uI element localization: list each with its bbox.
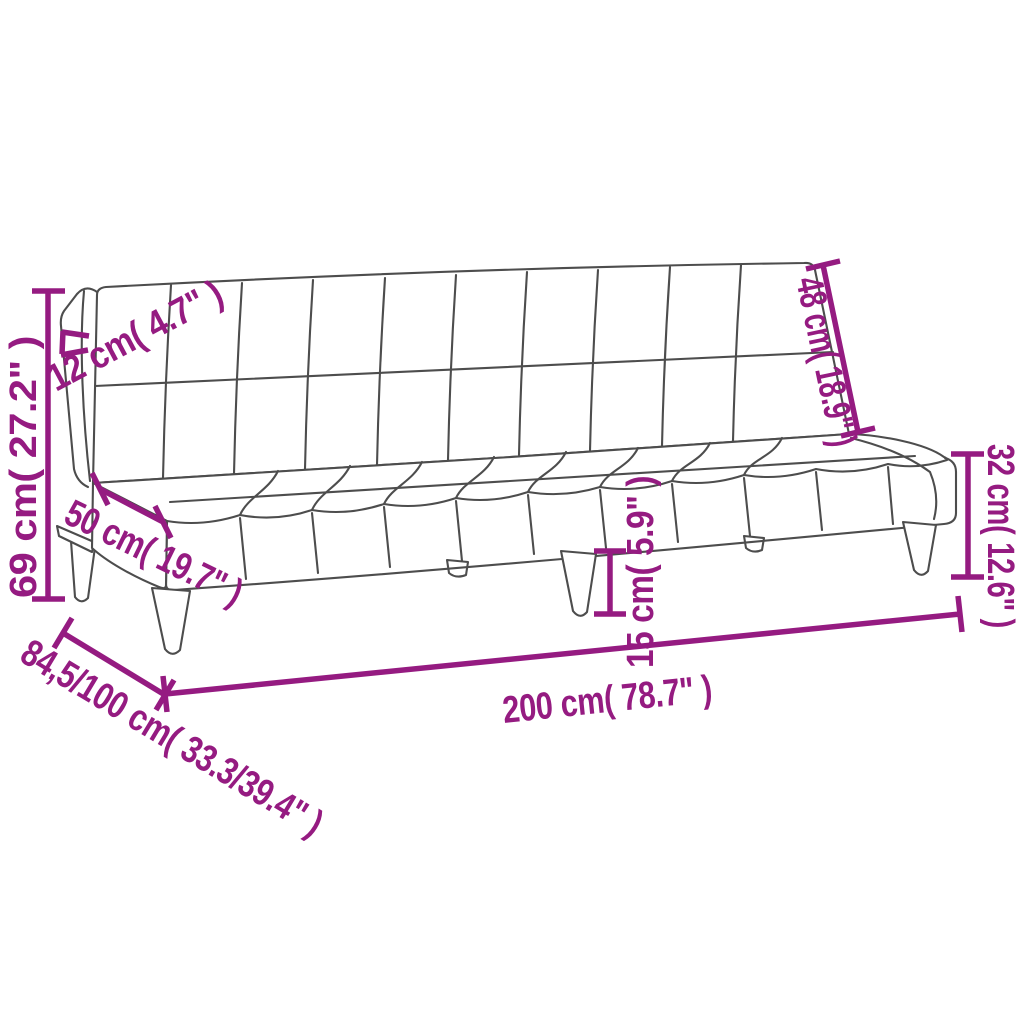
- front-right-leg: [903, 522, 936, 575]
- sofa-dimension-diagram: 69 cm( 27.2" ) 12 cm( 4.7" ) 50 cm( 19.7…: [0, 0, 1024, 1024]
- front-middle-leg: [561, 551, 596, 616]
- front-valley-seam: [744, 478, 750, 536]
- dim-seat-height: 32 cm( 12.6" ): [951, 444, 1021, 628]
- front-valley-seam: [600, 490, 606, 548]
- rear-leg-stub: [744, 536, 764, 552]
- front-valley-seam: [528, 495, 534, 554]
- front-valley-seam: [816, 472, 822, 530]
- front-valley-seam: [384, 507, 390, 567]
- dimension-label: 200 cm( 78.7" ): [501, 668, 714, 732]
- dim-overall-width: 200 cm( 78.7" ): [163, 596, 962, 732]
- dimension-label: 69 cm( 27.2" ): [3, 336, 45, 598]
- front-left-leg: [152, 588, 190, 654]
- dim-leg-height: 15 cm( 5.9" ): [594, 476, 662, 668]
- dimension-label: 15 cm( 5.9" ): [620, 476, 662, 668]
- dim-overall-height: 69 cm( 27.2" ): [3, 291, 65, 599]
- front-valley-seam: [888, 467, 893, 524]
- front-valley-seam: [456, 501, 462, 561]
- dimension-label: 32 cm( 12.6" ): [979, 444, 1021, 628]
- dimension-label: 84,5/100 cm( 33.3/39.4" ): [13, 632, 329, 845]
- front-valley-seam: [312, 513, 318, 573]
- front-valley-seam: [672, 484, 678, 542]
- front-valley-seam: [240, 518, 246, 579]
